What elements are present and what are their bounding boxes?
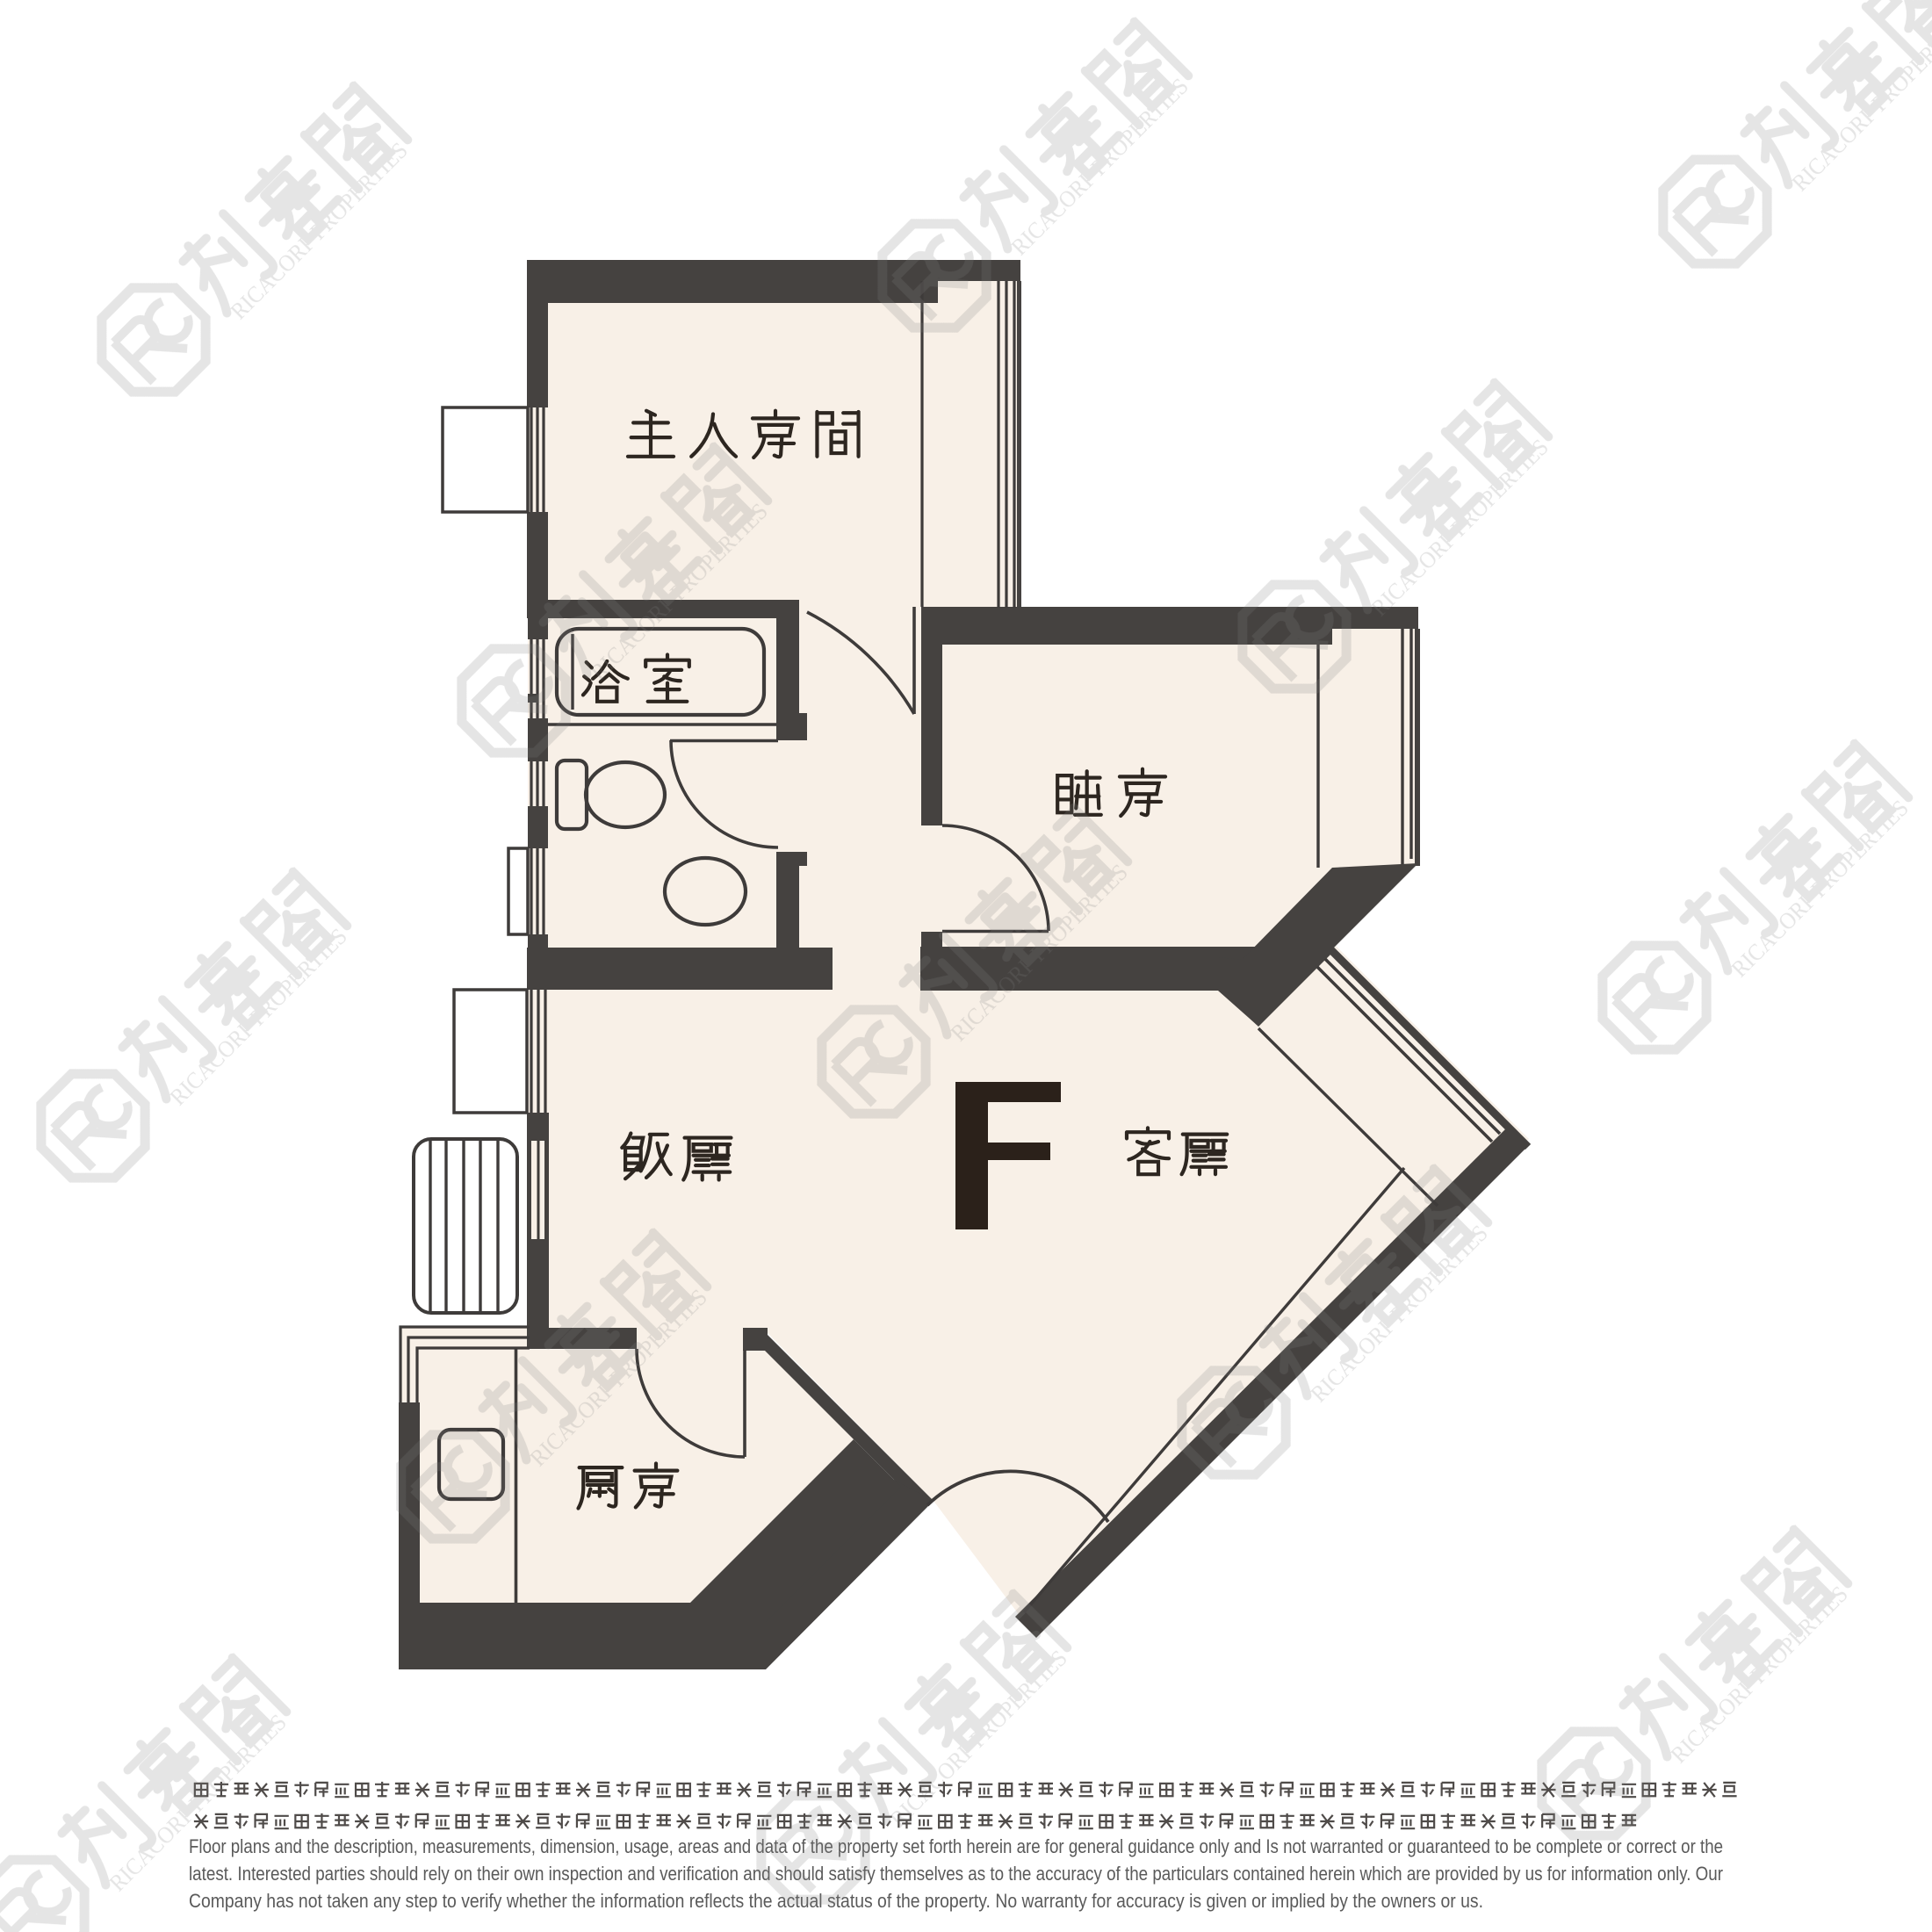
svg-text:Floor plans and the descriptio: Floor plans and the description, measure… — [189, 1835, 1723, 1857]
svg-text:latest. Interested parties sho: latest. Interested parties should rely o… — [189, 1863, 1723, 1885]
